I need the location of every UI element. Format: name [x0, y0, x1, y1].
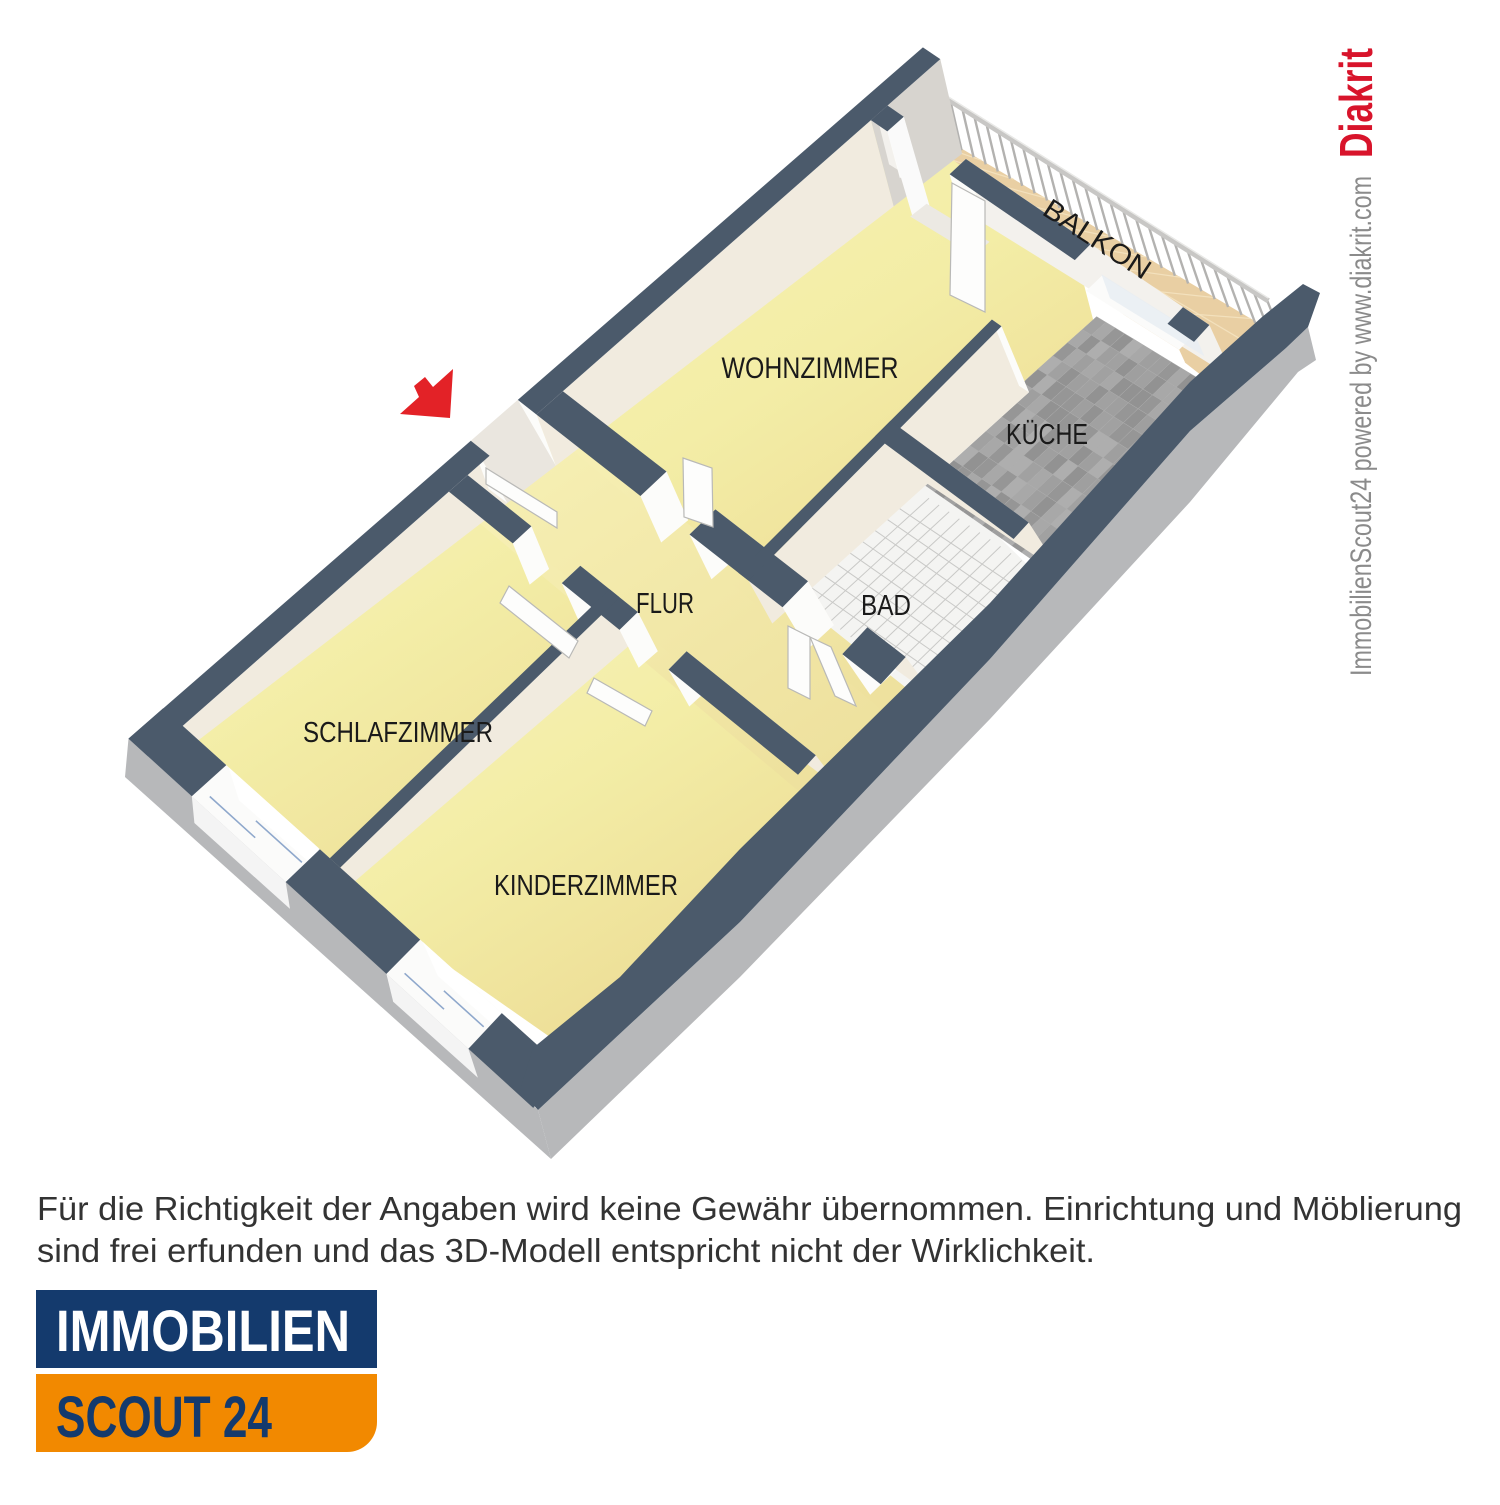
svg-text:SCHLAFZIMMER: SCHLAFZIMMER	[303, 717, 493, 749]
svg-text:KÜCHE: KÜCHE	[1006, 419, 1088, 451]
svg-text:sind frei erfunden und das 3D-: sind frei erfunden und das 3D-Modell ent…	[37, 1233, 1095, 1270]
svg-text:SCOUT 24: SCOUT 24	[56, 1385, 272, 1450]
svg-text:Für die Richtigkeit der Angabe: Für die Richtigkeit der Angaben wird kei…	[37, 1191, 1462, 1228]
svg-text:Diakrit: Diakrit	[1330, 48, 1382, 158]
svg-text:KINDERZIMMER: KINDERZIMMER	[494, 870, 678, 902]
svg-text:WOHNZIMMER: WOHNZIMMER	[722, 352, 899, 385]
svg-text:FLUR: FLUR	[636, 588, 694, 620]
svg-text:IMMOBILIEN: IMMOBILIEN	[56, 1299, 350, 1364]
svg-text:BAD: BAD	[861, 590, 911, 622]
svg-text:ImmobilienScout24 powered by w: ImmobilienScout24 powered by www.diakrit…	[1345, 176, 1378, 676]
